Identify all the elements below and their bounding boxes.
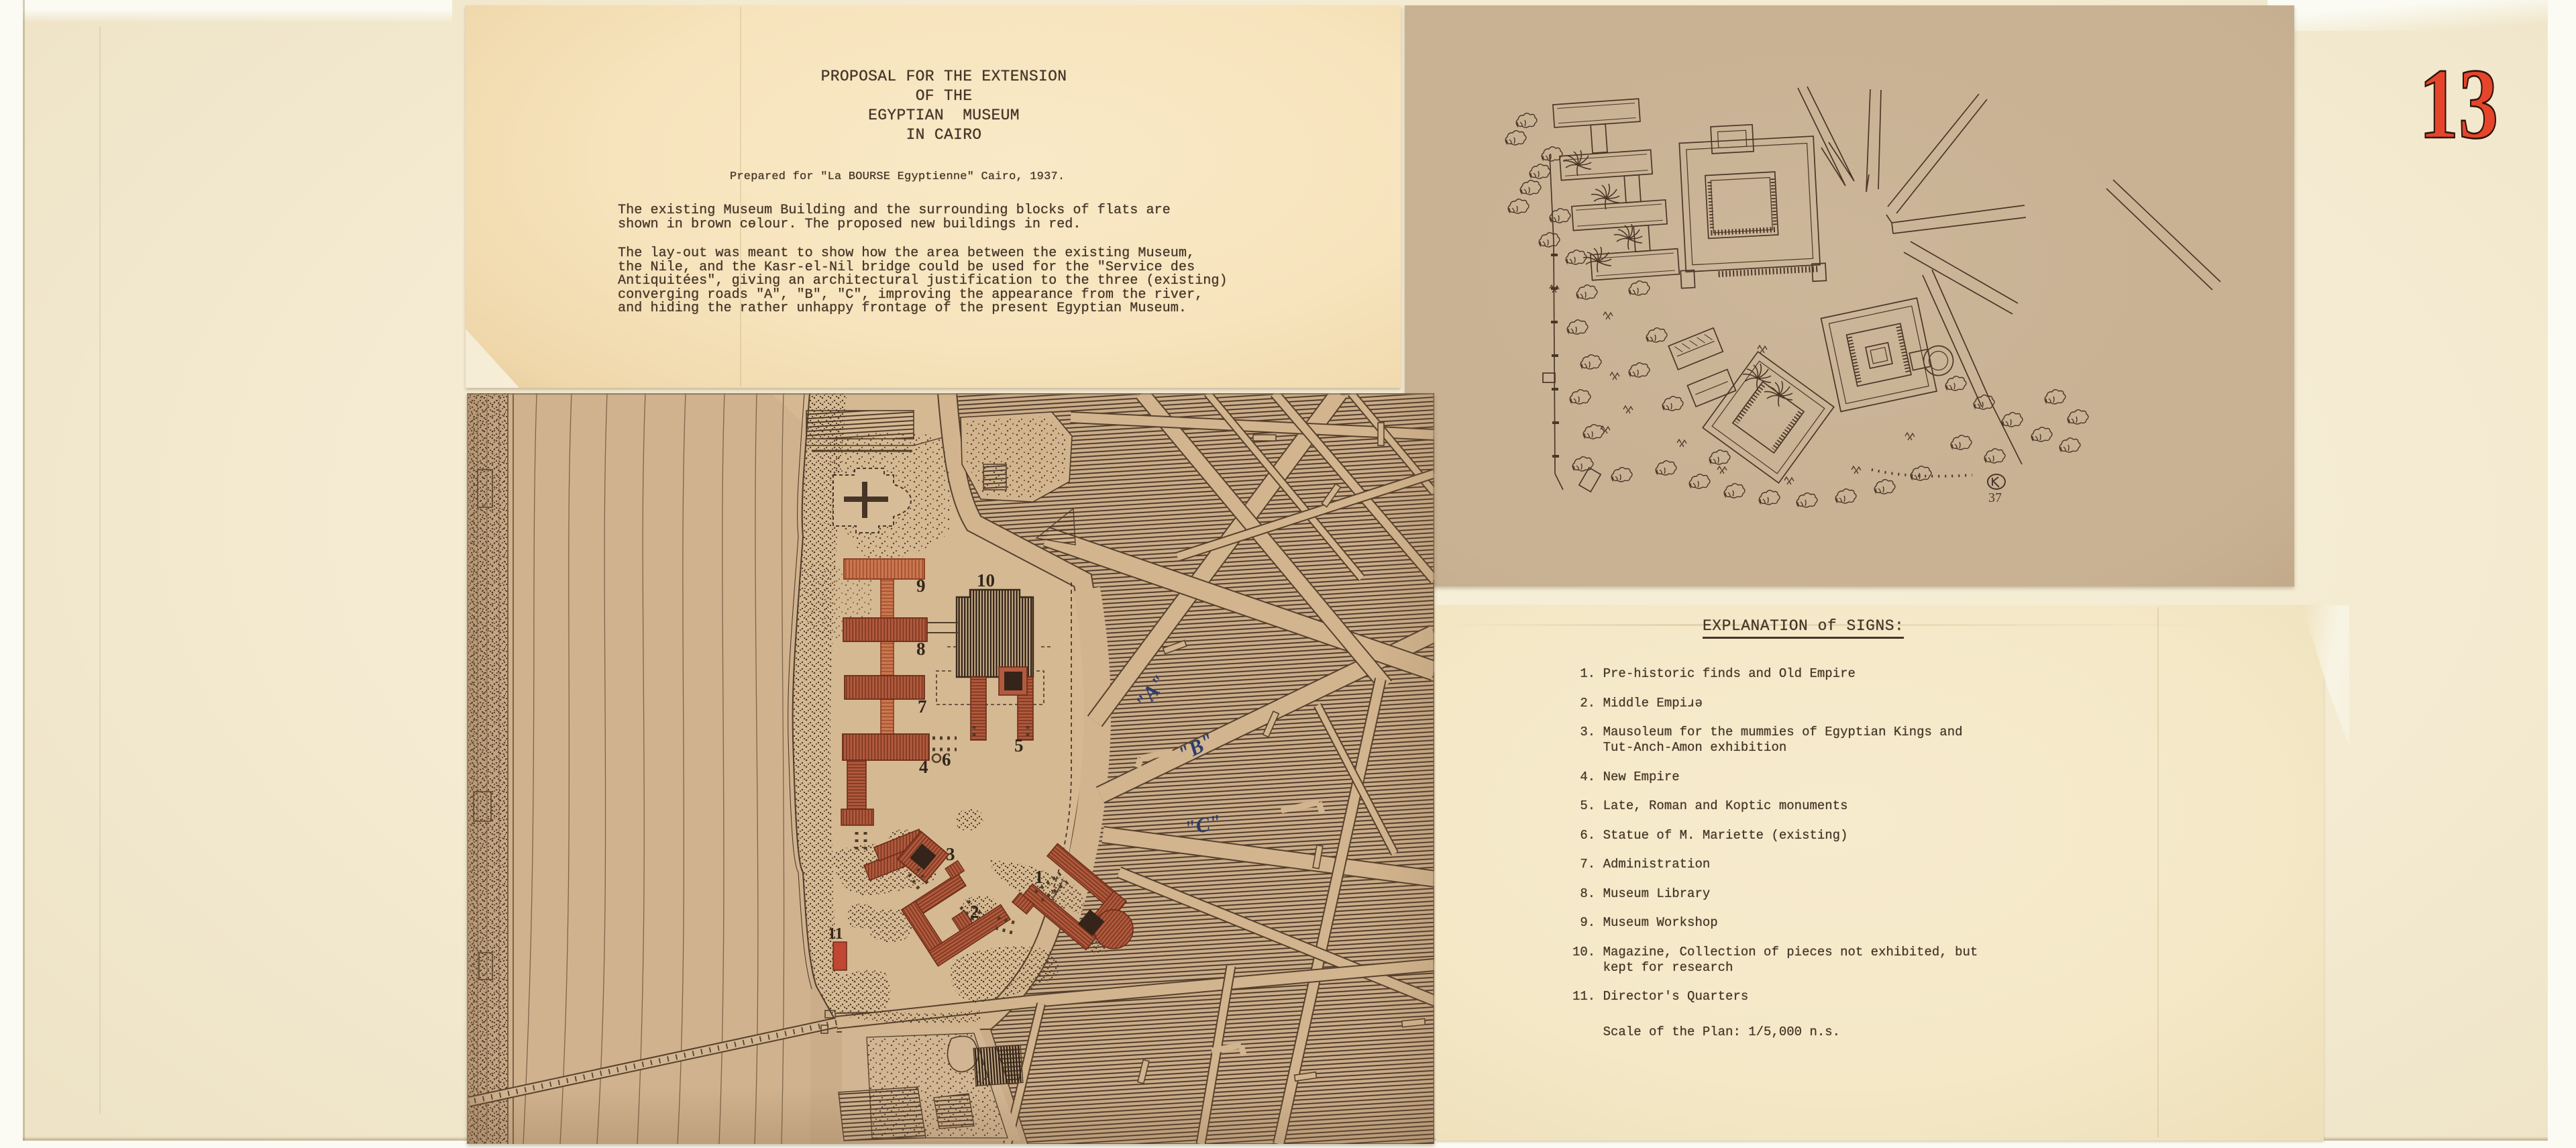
svg-text:37: 37 (1988, 490, 2002, 505)
svg-text:13: 13 (2419, 48, 2498, 160)
